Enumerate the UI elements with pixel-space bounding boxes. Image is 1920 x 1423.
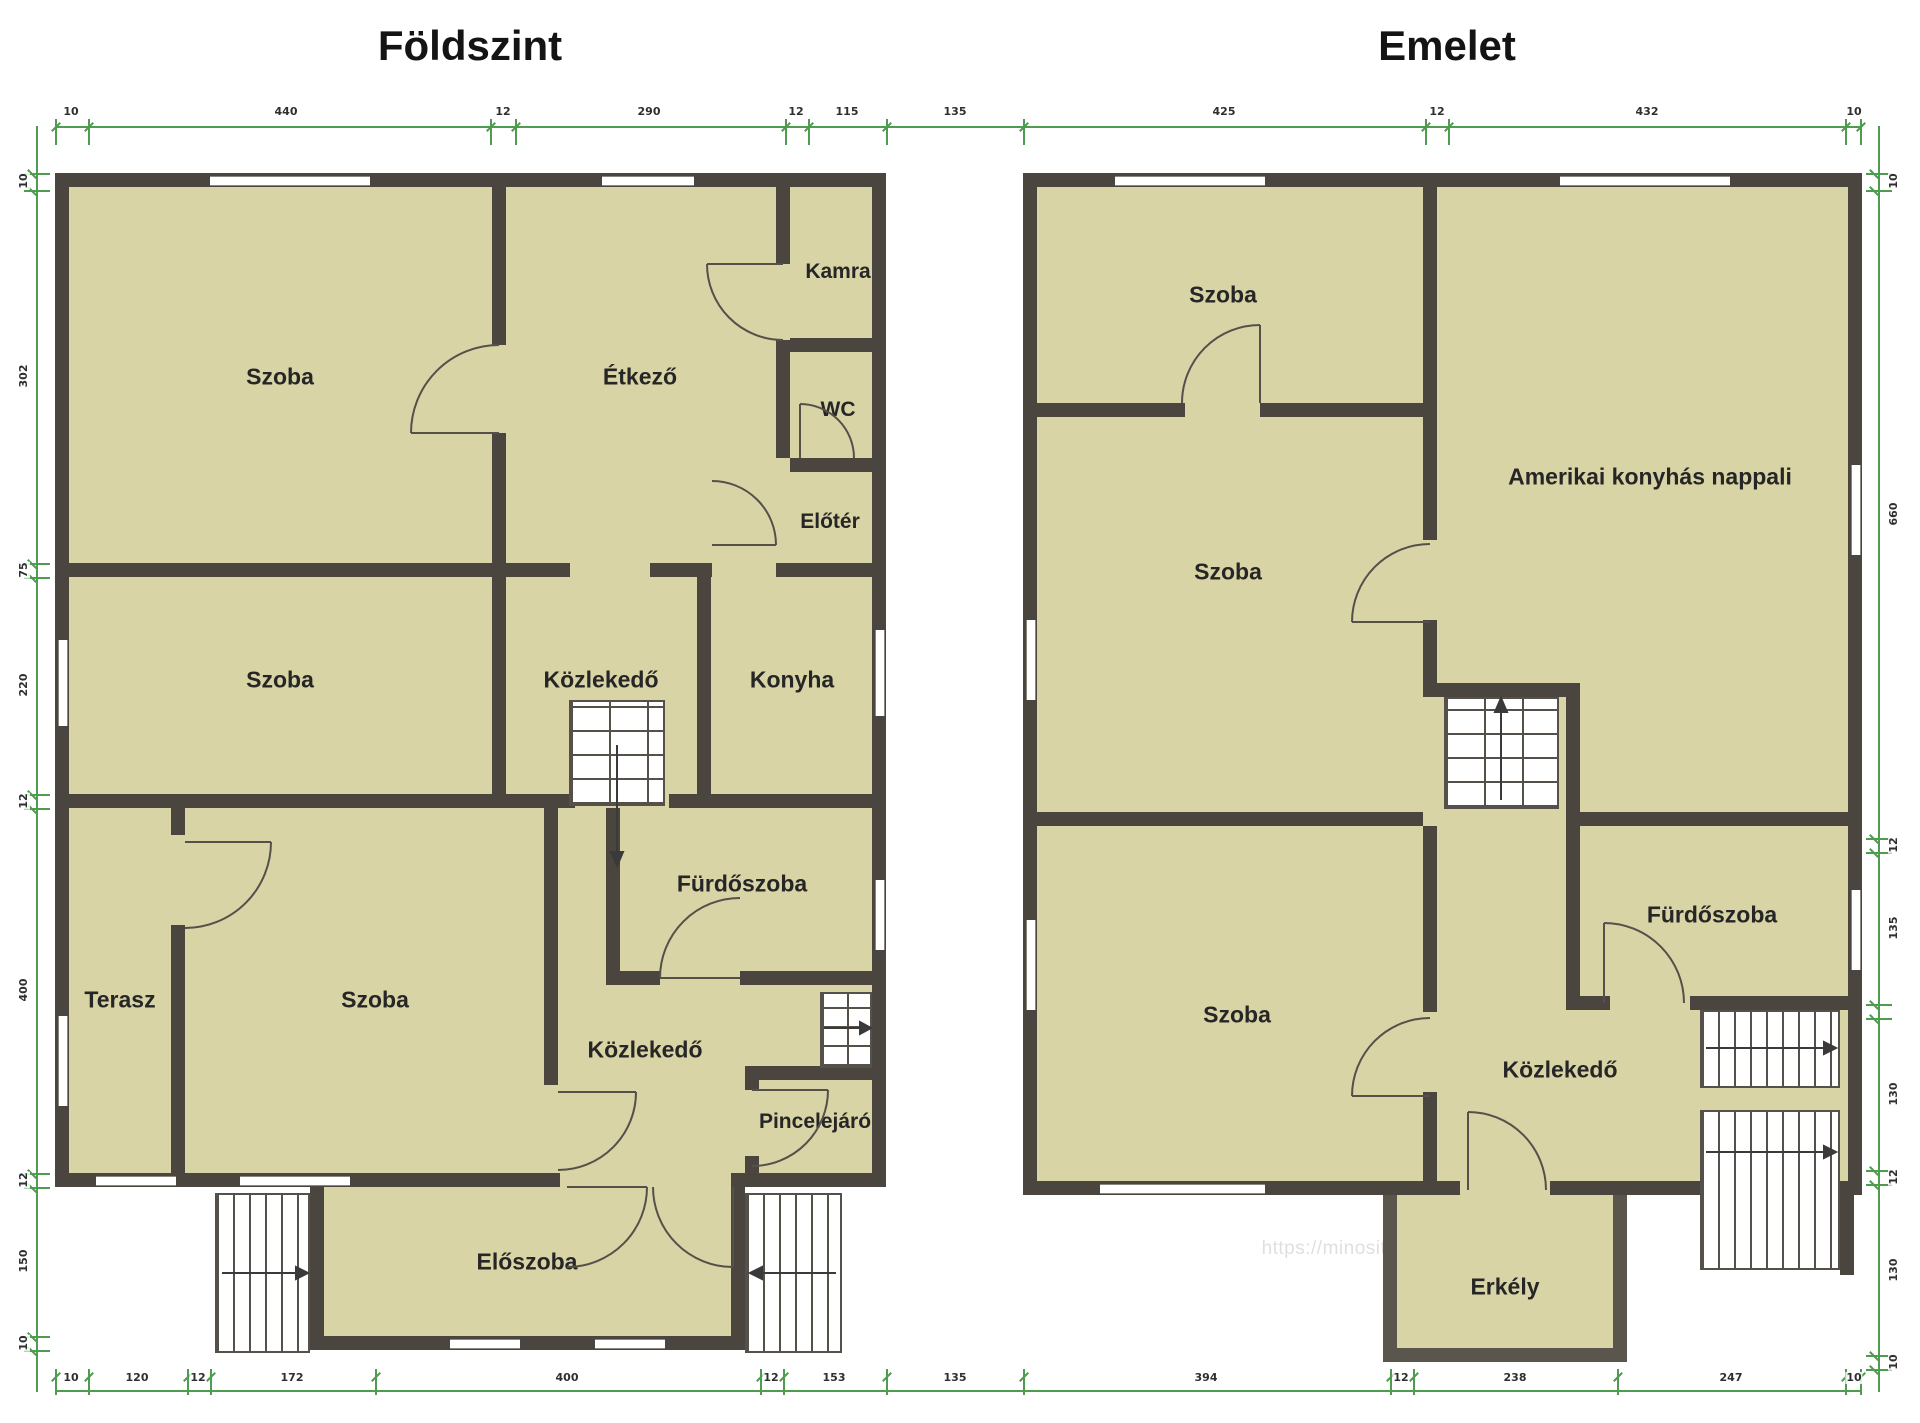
dimension-tick (55, 119, 57, 145)
dimension-value: 150 (18, 1249, 30, 1274)
dimension-value: 130 (1888, 1082, 1900, 1107)
dimension-value: 432 (1635, 106, 1660, 118)
dimension-value: 400 (555, 1372, 580, 1384)
door-arc (1604, 923, 1684, 1003)
dimension-value: 10 (18, 172, 30, 189)
dimension-value: 400 (18, 978, 30, 1003)
dimension-value: 12 (1888, 1168, 1900, 1185)
dimension-tick (88, 1369, 90, 1395)
dimension-value: 135 (1888, 916, 1900, 941)
dimension-tick (88, 119, 90, 145)
door-arc (712, 481, 776, 545)
dimension-value: 135 (943, 1372, 968, 1384)
dimension-tick (24, 190, 50, 192)
dimension-line (1878, 126, 1880, 1392)
dimension-tick (1866, 1004, 1892, 1006)
door-arc (1352, 1018, 1430, 1096)
door-arc (707, 264, 783, 340)
dimension-tick (1023, 1369, 1025, 1395)
dimension-value: 12 (494, 106, 511, 118)
door-arc (411, 345, 499, 433)
dimension-line (55, 126, 1862, 128)
dimension-tick (1860, 119, 1862, 145)
door-and-stair-symbols (0, 0, 1920, 1423)
door-arc (567, 1187, 647, 1267)
dimension-value: 172 (280, 1372, 305, 1384)
dimension-value: 440 (274, 106, 299, 118)
dimension-value: 75 (18, 561, 30, 578)
dimension-tick (515, 119, 517, 145)
dimension-value: 120 (125, 1372, 150, 1384)
door-arc (1182, 325, 1260, 403)
dimension-tick (1023, 119, 1025, 145)
dimension-tick (783, 1369, 785, 1395)
dimension-tick (1866, 190, 1892, 192)
door-arc (185, 842, 271, 928)
dimension-value: 247 (1719, 1372, 1744, 1384)
floorplan-canvas: Földszint Emelet https://minositettingat… (0, 0, 1920, 1423)
dimension-tick (785, 119, 787, 145)
dimension-value: 660 (1888, 502, 1900, 527)
door-arc (752, 1090, 828, 1166)
arrowhead (1824, 1042, 1836, 1054)
door-arc (1468, 1112, 1546, 1190)
dimension-value: 135 (943, 106, 968, 118)
arrowhead (1495, 698, 1507, 712)
dimension-tick (1617, 1369, 1619, 1395)
dimension-tick (55, 1369, 57, 1395)
arrowhead (296, 1267, 308, 1279)
dimension-value: 220 (18, 673, 30, 698)
arrowhead (750, 1267, 762, 1279)
dimension-tick (1425, 119, 1427, 145)
arrowhead (860, 1022, 871, 1034)
dimension-value: 12 (1428, 106, 1445, 118)
dimension-tick (375, 1369, 377, 1395)
door-arc (660, 898, 740, 978)
dimension-value: 10 (1888, 1353, 1900, 1370)
dimension-value: 290 (637, 106, 662, 118)
dimension-value: 238 (1503, 1372, 1528, 1384)
dimension-value: 12 (18, 1171, 30, 1188)
door-arc (558, 1092, 636, 1170)
dimension-value: 12 (189, 1372, 206, 1384)
dimension-value: 12 (1888, 836, 1900, 853)
dimension-value: 10 (1845, 106, 1862, 118)
dimension-value: 130 (1888, 1258, 1900, 1283)
door-arc (800, 404, 854, 458)
dimension-tick (1448, 119, 1450, 145)
dimension-value: 10 (1888, 172, 1900, 189)
dimension-tick (808, 119, 810, 145)
dimension-value: 12 (1392, 1372, 1409, 1384)
dimension-tick (1866, 1018, 1892, 1020)
dimension-value: 153 (822, 1372, 847, 1384)
dimension-value: 425 (1212, 106, 1237, 118)
dimension-line (36, 126, 38, 1392)
dimension-value: 10 (62, 106, 79, 118)
dimension-tick (1845, 119, 1847, 145)
dimension-value: 115 (835, 106, 860, 118)
dimension-line (55, 1390, 1862, 1392)
dimension-value: 12 (18, 792, 30, 809)
dimension-value: 394 (1194, 1372, 1219, 1384)
dimension-value: 12 (762, 1372, 779, 1384)
dimension-value: 302 (18, 364, 30, 389)
dimension-tick (886, 119, 888, 145)
dimension-value: 10 (62, 1372, 79, 1384)
door-arc (653, 1187, 733, 1267)
dimension-tick (210, 1369, 212, 1395)
dimension-value: 12 (787, 106, 804, 118)
arrowhead (611, 852, 623, 866)
dimension-value: 10 (1845, 1372, 1862, 1384)
dimension-tick (490, 119, 492, 145)
dimension-value: 10 (18, 1334, 30, 1351)
dimension-tick (886, 1369, 888, 1395)
door-arc (1352, 544, 1430, 622)
arrowhead (1824, 1146, 1836, 1158)
dimension-tick (1413, 1369, 1415, 1395)
